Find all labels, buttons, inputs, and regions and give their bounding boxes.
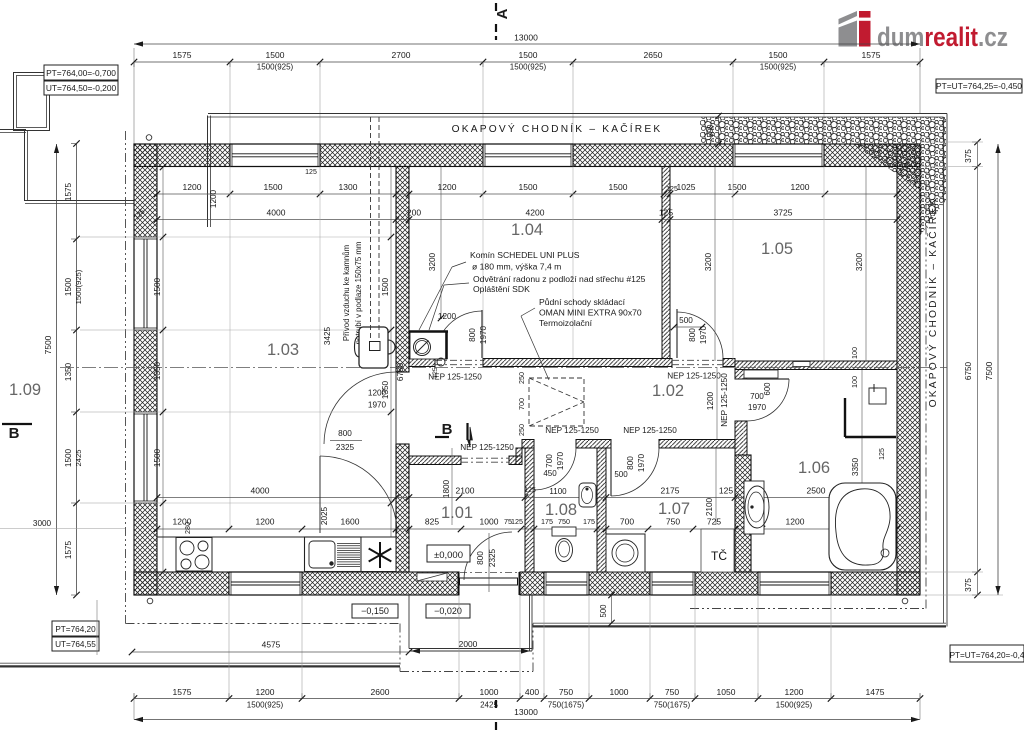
svg-text:6750: 6750 bbox=[964, 361, 973, 380]
svg-text:NEP 125-1250: NEP 125-1250 bbox=[667, 372, 721, 381]
svg-text:1970: 1970 bbox=[479, 325, 488, 344]
svg-text:400: 400 bbox=[525, 687, 539, 697]
svg-text:1500: 1500 bbox=[381, 277, 390, 296]
svg-text:800: 800 bbox=[468, 328, 477, 342]
svg-text:1500: 1500 bbox=[266, 50, 285, 60]
svg-text:1.05: 1.05 bbox=[761, 240, 793, 258]
svg-text:PT=764,00=-0,700: PT=764,00=-0,700 bbox=[46, 68, 116, 78]
svg-text:dumrealit.cz: dumrealit.cz bbox=[877, 22, 1008, 52]
svg-text:725: 725 bbox=[707, 517, 721, 527]
svg-text:1600: 1600 bbox=[341, 517, 360, 527]
svg-text:UT=764,55: UT=764,55 bbox=[55, 640, 96, 649]
svg-text:1500: 1500 bbox=[64, 277, 73, 296]
svg-text:1500: 1500 bbox=[728, 182, 747, 192]
svg-text:1500: 1500 bbox=[609, 182, 628, 192]
svg-text:3200: 3200 bbox=[704, 252, 713, 271]
svg-text:1970: 1970 bbox=[368, 401, 387, 410]
svg-text:1.07: 1.07 bbox=[658, 500, 690, 518]
svg-text:125: 125 bbox=[432, 367, 439, 379]
svg-text:1200: 1200 bbox=[183, 182, 202, 192]
svg-text:1500: 1500 bbox=[64, 448, 73, 467]
svg-text:2100: 2100 bbox=[456, 486, 475, 496]
svg-text:500: 500 bbox=[614, 470, 628, 479]
svg-text:OKAPOVÝ CHODNÍK – KAČÍREK: OKAPOVÝ CHODNÍK – KAČÍREK bbox=[926, 197, 939, 408]
svg-text:NEP 125-1250: NEP 125-1250 bbox=[720, 373, 729, 427]
svg-text:3425: 3425 bbox=[323, 326, 332, 345]
svg-text:1000: 1000 bbox=[610, 687, 629, 697]
svg-text:250: 250 bbox=[517, 424, 526, 436]
svg-text:1500: 1500 bbox=[769, 50, 788, 60]
svg-text:500: 500 bbox=[679, 316, 693, 325]
svg-text:B: B bbox=[9, 425, 20, 442]
svg-text:OKAPOVÝ CHODNÍK – KAČÍREK: OKAPOVÝ CHODNÍK – KAČÍREK bbox=[452, 122, 663, 135]
svg-text:NEP 125-1250: NEP 125-1250 bbox=[545, 426, 599, 435]
svg-text:750: 750 bbox=[665, 687, 679, 697]
svg-text:125: 125 bbox=[659, 208, 673, 218]
svg-text:2025: 2025 bbox=[320, 506, 329, 525]
svg-text:2325: 2325 bbox=[336, 443, 355, 452]
svg-text:3200: 3200 bbox=[428, 252, 437, 271]
svg-text:2000: 2000 bbox=[459, 639, 478, 649]
svg-text:1350: 1350 bbox=[153, 361, 162, 380]
svg-text:175: 175 bbox=[583, 517, 595, 526]
svg-text:2425: 2425 bbox=[480, 701, 498, 710]
svg-text:4000: 4000 bbox=[251, 486, 270, 496]
svg-text:2325: 2325 bbox=[488, 548, 497, 567]
svg-text:2425: 2425 bbox=[74, 450, 83, 467]
svg-text:1.04: 1.04 bbox=[511, 221, 543, 239]
svg-text:100: 100 bbox=[850, 376, 859, 388]
svg-text:1.09: 1.09 bbox=[9, 381, 41, 399]
svg-text:4200: 4200 bbox=[526, 208, 545, 218]
svg-text:7500: 7500 bbox=[43, 335, 53, 354]
svg-text:1500(925): 1500(925) bbox=[776, 701, 813, 710]
svg-text:1500: 1500 bbox=[264, 182, 283, 192]
svg-text:1000: 1000 bbox=[480, 517, 499, 527]
svg-text:200: 200 bbox=[407, 208, 421, 218]
svg-text:1500(925): 1500(925) bbox=[247, 701, 284, 710]
svg-text:1500: 1500 bbox=[153, 448, 162, 467]
svg-text:1200: 1200 bbox=[791, 182, 810, 192]
svg-text:250: 250 bbox=[517, 372, 526, 384]
svg-text:−0,150: −0,150 bbox=[361, 606, 389, 616]
svg-text:1970: 1970 bbox=[748, 403, 767, 412]
svg-text:1575: 1575 bbox=[862, 50, 881, 60]
svg-text:1970: 1970 bbox=[637, 453, 646, 472]
svg-text:−0,020: −0,020 bbox=[434, 606, 462, 616]
svg-text:1500(925): 1500(925) bbox=[257, 63, 294, 72]
svg-text:1.06: 1.06 bbox=[798, 459, 830, 477]
svg-text:2500: 2500 bbox=[807, 486, 826, 496]
svg-text:1200: 1200 bbox=[438, 182, 457, 192]
svg-text:750: 750 bbox=[559, 687, 573, 697]
svg-text:A: A bbox=[494, 8, 511, 19]
svg-text:1200: 1200 bbox=[209, 189, 218, 208]
svg-text:13000: 13000 bbox=[514, 33, 538, 43]
svg-text:800: 800 bbox=[476, 551, 485, 565]
svg-text:1100: 1100 bbox=[549, 487, 567, 496]
svg-text:3000: 3000 bbox=[33, 519, 52, 528]
svg-text:750: 750 bbox=[666, 517, 680, 527]
svg-text:125: 125 bbox=[666, 186, 678, 193]
svg-text:Komín SCHEDEL UNI PLUS: Komín SCHEDEL UNI PLUS bbox=[470, 250, 580, 260]
svg-text:125: 125 bbox=[879, 448, 886, 460]
svg-text:UT=764,50=-0,200: UT=764,50=-0,200 bbox=[46, 83, 117, 93]
svg-text:7500: 7500 bbox=[984, 361, 994, 380]
svg-text:825: 825 bbox=[425, 517, 439, 527]
svg-text:2100: 2100 bbox=[705, 497, 714, 516]
svg-text:125: 125 bbox=[511, 517, 523, 526]
svg-text:1200: 1200 bbox=[785, 687, 804, 697]
svg-text:750: 750 bbox=[558, 517, 570, 526]
svg-text:750(1675): 750(1675) bbox=[548, 701, 585, 710]
svg-text:ø 180 mm, výška 7,4 m: ø 180 mm, výška 7,4 m bbox=[472, 262, 561, 272]
svg-text:100: 100 bbox=[850, 347, 859, 359]
svg-text:750(1675): 750(1675) bbox=[654, 701, 691, 710]
svg-text:2175: 2175 bbox=[661, 486, 680, 496]
svg-text:1970: 1970 bbox=[556, 451, 565, 470]
svg-text:1500: 1500 bbox=[153, 277, 162, 296]
svg-text:1200: 1200 bbox=[438, 312, 457, 321]
svg-text:13000: 13000 bbox=[514, 707, 538, 717]
svg-text:1350: 1350 bbox=[64, 362, 73, 381]
svg-text:375: 375 bbox=[964, 578, 973, 592]
svg-text:450: 450 bbox=[543, 469, 557, 478]
svg-text:1.02: 1.02 bbox=[652, 382, 684, 400]
svg-text:4575: 4575 bbox=[262, 640, 281, 650]
svg-text:700: 700 bbox=[517, 398, 526, 410]
svg-text:1050: 1050 bbox=[717, 687, 736, 697]
svg-text:1970: 1970 bbox=[699, 325, 708, 344]
svg-text:B: B bbox=[442, 421, 453, 438]
svg-text:NEP 125-1250: NEP 125-1250 bbox=[460, 443, 514, 452]
svg-text:125: 125 bbox=[305, 169, 317, 176]
svg-text:800: 800 bbox=[338, 429, 352, 438]
svg-text:800: 800 bbox=[688, 328, 697, 342]
svg-text:PT=UT=764,20=-0,4: PT=UT=764,20=-0,4 bbox=[950, 651, 1024, 660]
svg-text:125: 125 bbox=[719, 486, 733, 496]
svg-text:1500(925): 1500(925) bbox=[74, 269, 83, 304]
svg-text:600: 600 bbox=[763, 382, 772, 396]
svg-text:3200: 3200 bbox=[855, 252, 864, 271]
svg-text:3350: 3350 bbox=[851, 457, 860, 476]
svg-text:1500: 1500 bbox=[519, 50, 538, 60]
svg-text:700: 700 bbox=[620, 517, 634, 527]
svg-text:800: 800 bbox=[626, 456, 635, 470]
svg-text:±0,000: ±0,000 bbox=[434, 550, 463, 561]
svg-text:1200: 1200 bbox=[256, 517, 275, 527]
svg-text:1575: 1575 bbox=[64, 182, 73, 201]
svg-text:PT=764,20: PT=764,20 bbox=[55, 625, 96, 634]
svg-text:500: 500 bbox=[706, 124, 715, 138]
svg-text:2650: 2650 bbox=[644, 50, 663, 60]
svg-text:1300: 1300 bbox=[339, 182, 358, 192]
svg-text:3725: 3725 bbox=[774, 208, 793, 218]
svg-text:OMAN MINI EXTRA 90x70: OMAN MINI EXTRA 90x70 bbox=[539, 308, 642, 318]
svg-text:4000: 4000 bbox=[267, 208, 286, 218]
svg-text:NEP 125-1250: NEP 125-1250 bbox=[623, 426, 677, 435]
svg-text:1575: 1575 bbox=[64, 540, 73, 559]
svg-text:1575: 1575 bbox=[173, 50, 192, 60]
svg-text:1.01: 1.01 bbox=[441, 504, 473, 522]
svg-text:1200: 1200 bbox=[786, 517, 805, 527]
svg-text:175: 175 bbox=[541, 517, 553, 526]
svg-text:1.03: 1.03 bbox=[267, 341, 299, 359]
svg-text:1200: 1200 bbox=[256, 687, 275, 697]
svg-text:PT=UT=764,25=-0,450: PT=UT=764,25=-0,450 bbox=[936, 81, 1022, 91]
svg-text:TČ: TČ bbox=[711, 548, 727, 563]
svg-text:Odvětrání radonu z podloží nad: Odvětrání radonu z podloží nad střechu #… bbox=[473, 274, 646, 284]
svg-text:375: 375 bbox=[964, 149, 973, 163]
svg-text:1350: 1350 bbox=[381, 380, 390, 399]
svg-text:Opláštění SDK: Opláštění SDK bbox=[473, 284, 530, 294]
svg-text:1000: 1000 bbox=[480, 687, 499, 697]
svg-text:1475: 1475 bbox=[866, 687, 885, 697]
svg-text:2700: 2700 bbox=[392, 50, 411, 60]
svg-text:280: 280 bbox=[183, 522, 192, 534]
svg-text:Termoizolační: Termoizolační bbox=[539, 318, 593, 328]
svg-text:1500: 1500 bbox=[519, 182, 538, 192]
svg-text:1500(925): 1500(925) bbox=[510, 63, 547, 72]
svg-text:1025: 1025 bbox=[677, 182, 696, 192]
svg-text:2600: 2600 bbox=[371, 687, 390, 697]
svg-text:1200: 1200 bbox=[706, 391, 715, 410]
svg-text:125: 125 bbox=[524, 487, 536, 494]
svg-text:Přívod vzduchu ke kamnům: Přívod vzduchu ke kamnům bbox=[342, 245, 351, 341]
svg-text:500: 500 bbox=[599, 604, 608, 618]
svg-text:6750: 6750 bbox=[396, 362, 405, 381]
svg-text:700: 700 bbox=[545, 454, 554, 468]
svg-text:1575: 1575 bbox=[173, 687, 192, 697]
svg-text:1800: 1800 bbox=[442, 479, 451, 498]
svg-text:Půdní schody skládací: Půdní schody skládací bbox=[539, 297, 626, 307]
svg-text:1500(925): 1500(925) bbox=[760, 63, 797, 72]
